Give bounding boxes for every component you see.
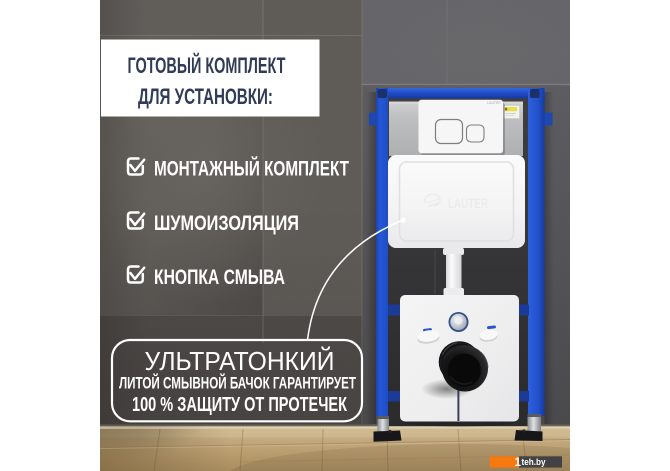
svg-text:ДЛЯ УСТАНОВКИ:: ДЛЯ УСТАНОВКИ: [138,84,273,109]
svg-text:1: 1 [515,457,522,469]
svg-text:МОНТАЖНЫЙ КОМПЛЕКТ: МОНТАЖНЫЙ КОМПЛЕКТ [154,156,349,181]
svg-text:ГОТОВЫЙ КОМПЛЕКТ: ГОТОВЫЙ КОМПЛЕКТ [128,53,286,78]
svg-text:КНОПКА СМЫВА: КНОПКА СМЫВА [154,265,285,289]
svg-text:LAUTER: LAUTER [487,101,501,105]
svg-text:teh.by: teh.by [522,457,547,468]
svg-text:LAUTER: LAUTER [448,196,488,211]
svg-text:ЛИТОЙ СМЫВНОЙ БАЧОК ГАРАНТИРУЕ: ЛИТОЙ СМЫВНОЙ БАЧОК ГАРАНТИРУЕТ [119,373,356,392]
svg-text:УЛЬТРАТОНКИЙ: УЛЬТРАТОНКИЙ [145,346,335,376]
svg-text:ШУМОИЗОЛЯЦИЯ: ШУМОИЗОЛЯЦИЯ [154,211,299,235]
svg-text:100 % ЗАЩИТУ ОТ ПРОТЕЧЕК: 100 % ЗАЩИТУ ОТ ПРОТЕЧЕК [132,394,348,416]
